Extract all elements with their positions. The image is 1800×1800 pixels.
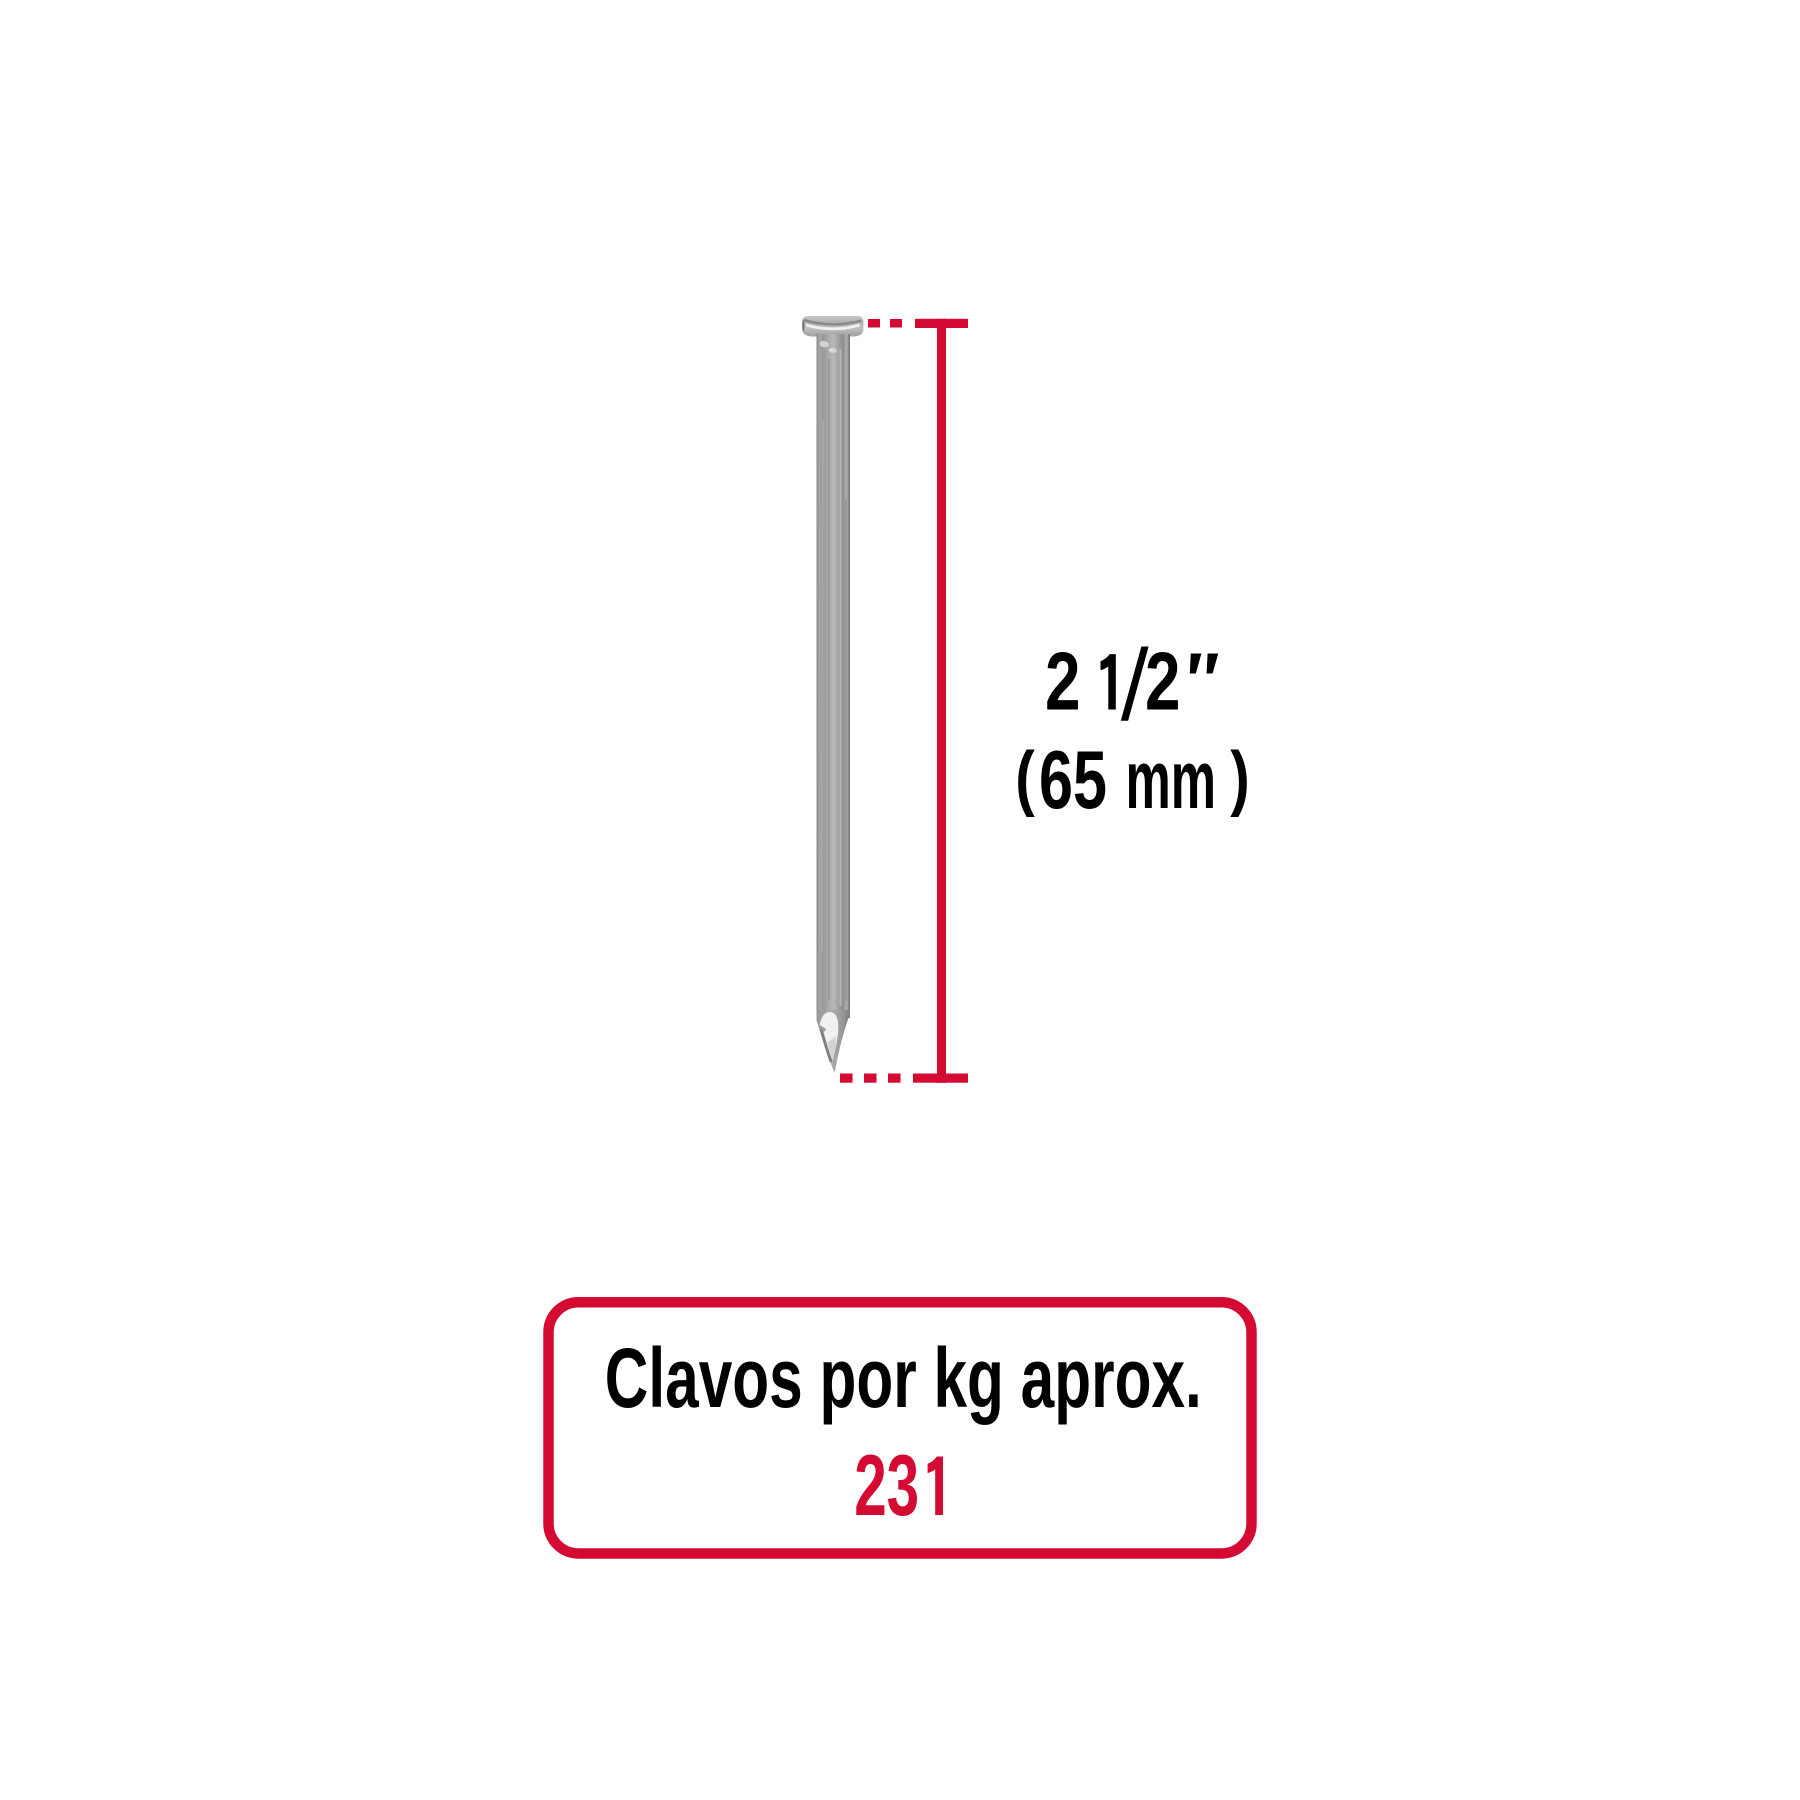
svg-text:mm: mm [1126,733,1217,826]
svg-text:(: ( [1015,737,1035,818]
svg-text:Clavos por kg aprox.: Clavos por kg aprox. [605,1331,1202,1425]
svg-text:2: 2 [1145,634,1181,727]
svg-text:2: 2 [1045,634,1081,727]
svg-text:): ) [1230,737,1250,818]
svg-text:23: 23 [854,1438,919,1534]
svg-text:65: 65 [1039,733,1107,826]
